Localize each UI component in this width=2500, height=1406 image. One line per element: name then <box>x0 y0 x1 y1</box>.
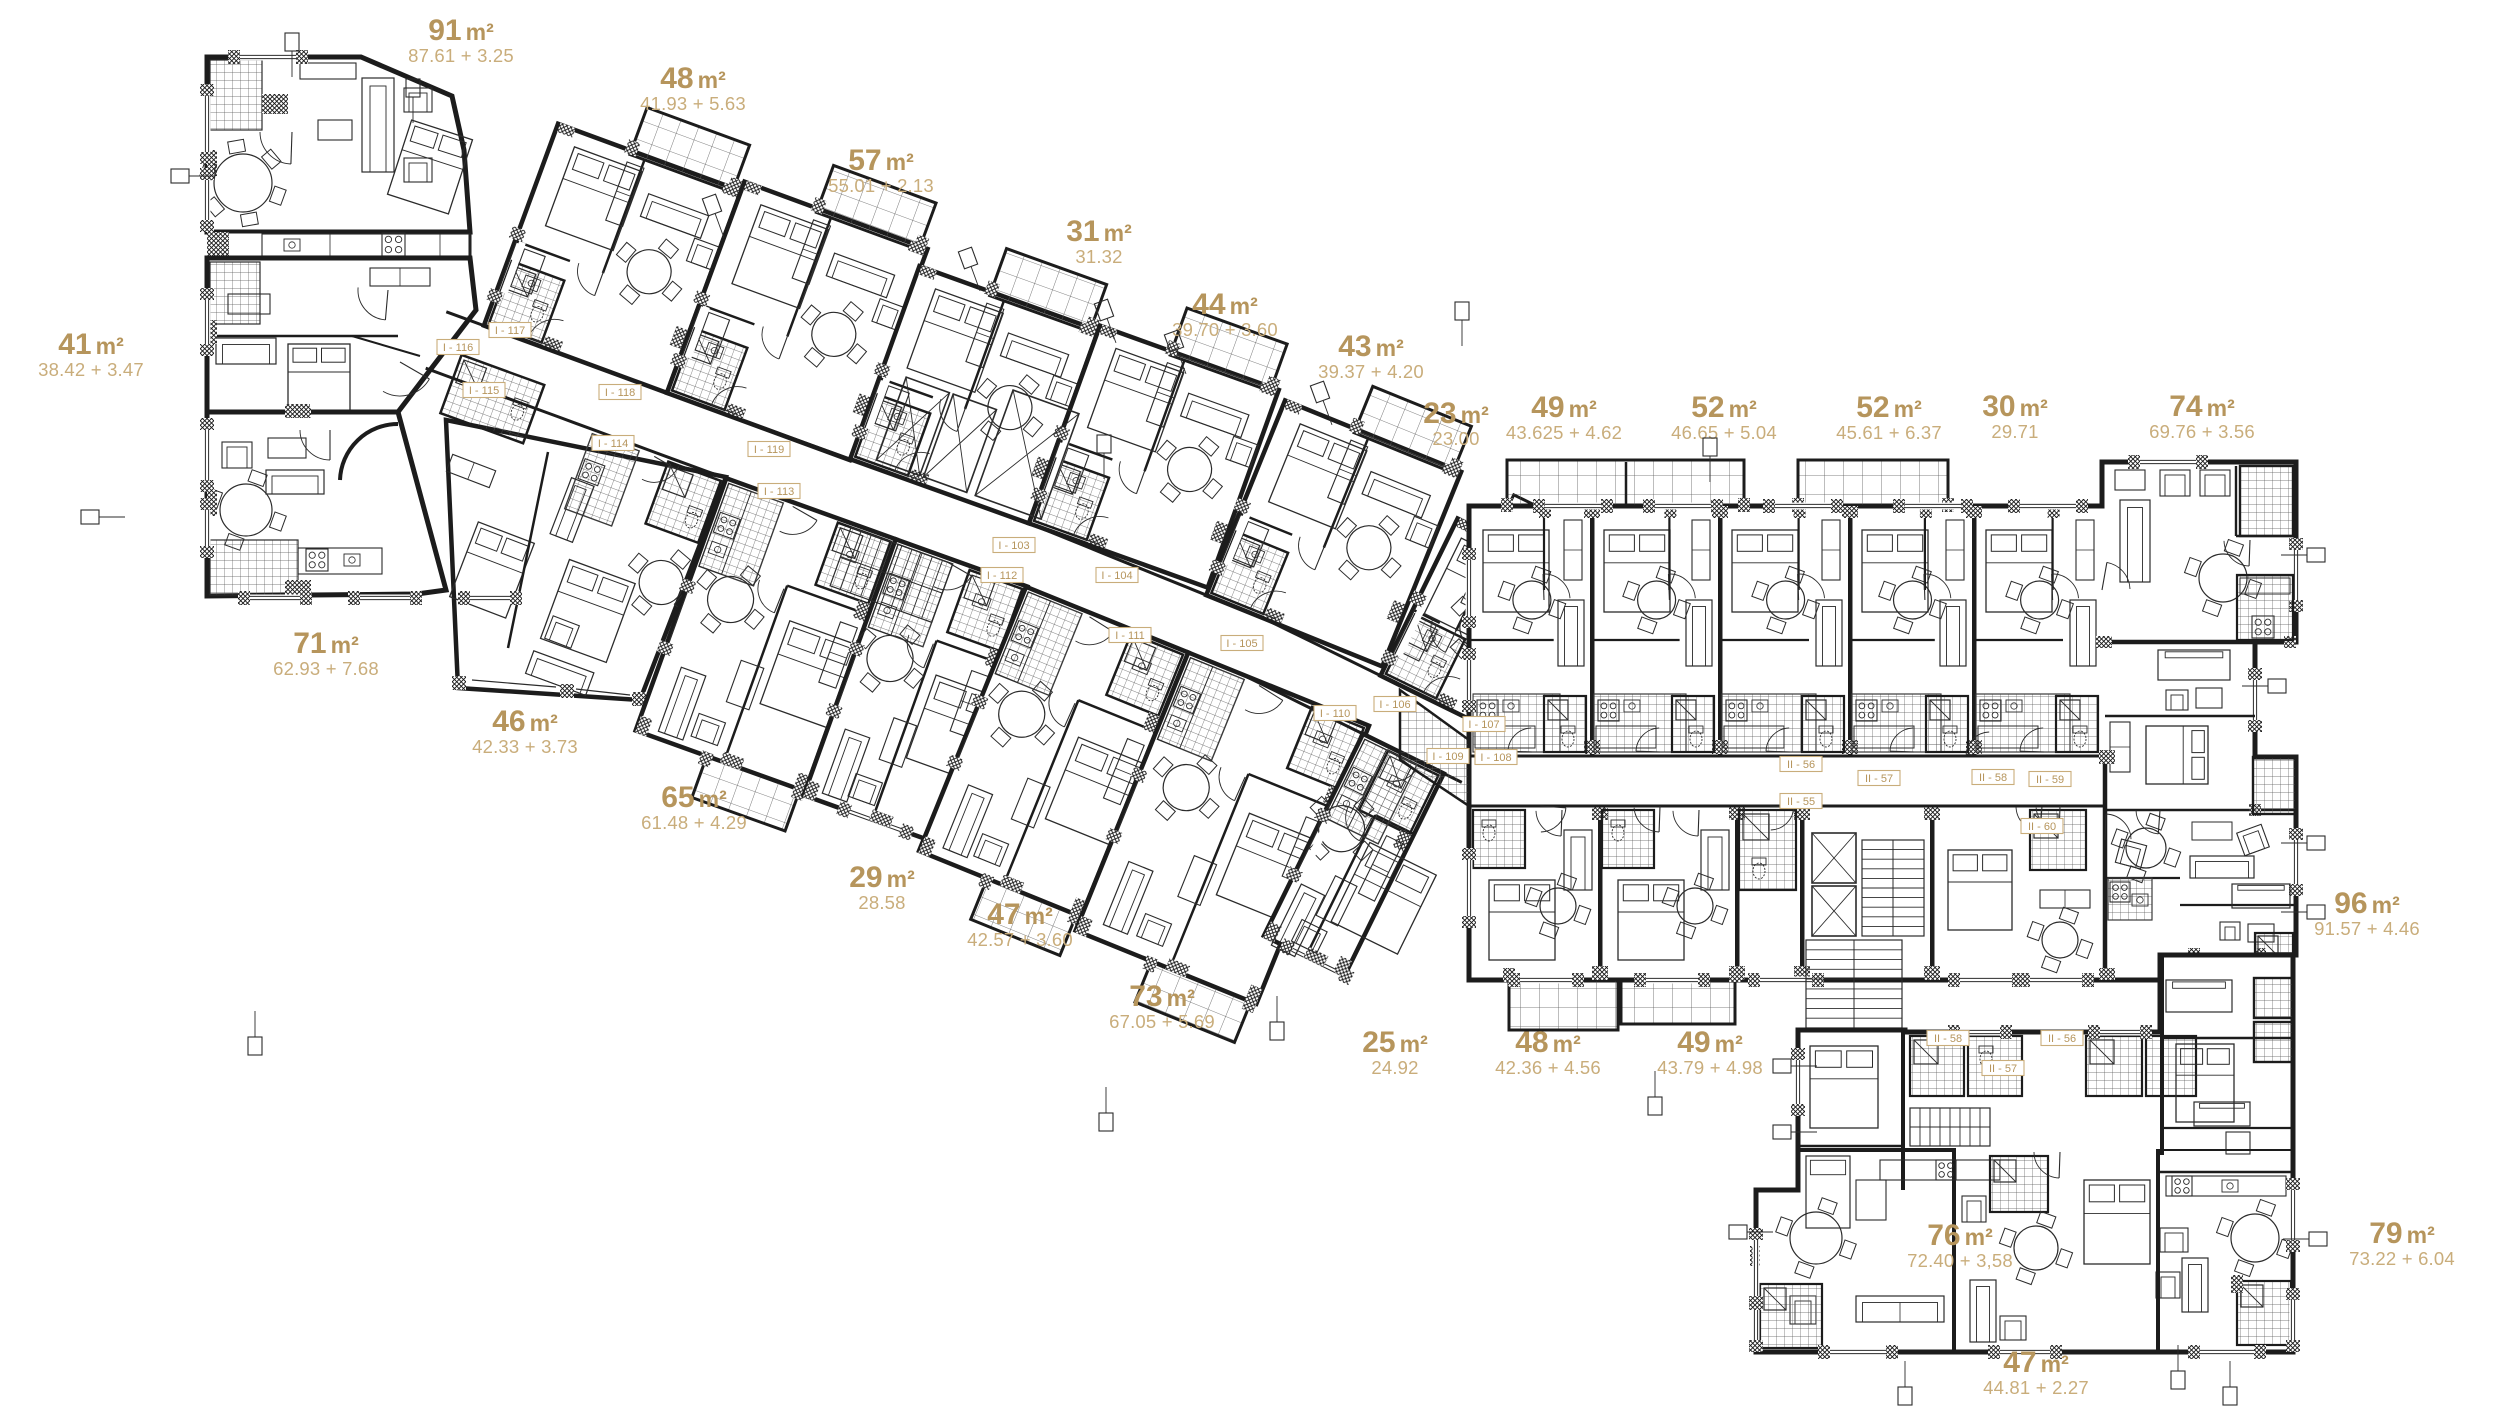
svg-text:I - 117: I - 117 <box>495 325 525 337</box>
svg-text:42.57 + 3.60: 42.57 + 3.60 <box>967 929 1073 950</box>
svg-text:74m²: 74m² <box>2169 390 2235 423</box>
svg-text:39.70 + 3.60: 39.70 + 3.60 <box>1172 319 1278 340</box>
svg-text:44m²: 44m² <box>1192 288 1258 321</box>
svg-text:38.42 + 3.47: 38.42 + 3.47 <box>38 359 144 380</box>
svg-text:I - 110: I - 110 <box>1320 708 1350 720</box>
svg-text:I - 115: I - 115 <box>469 385 499 397</box>
svg-text:I - 109: I - 109 <box>1432 751 1463 763</box>
svg-text:48m²: 48m² <box>1515 1026 1581 1059</box>
svg-text:46m²: 46m² <box>492 705 558 738</box>
svg-text:II - 55: II - 55 <box>1787 796 1815 808</box>
svg-text:43.79 + 4.98: 43.79 + 4.98 <box>1657 1057 1763 1078</box>
svg-text:57m²: 57m² <box>848 144 914 177</box>
svg-text:61.48 + 4.29: 61.48 + 4.29 <box>641 812 747 833</box>
svg-text:45.61 + 6.37: 45.61 + 6.37 <box>1836 422 1942 443</box>
svg-text:76m²: 76m² <box>1927 1219 1993 1252</box>
svg-text:67.05 + 5.69: 67.05 + 5.69 <box>1109 1011 1215 1032</box>
svg-text:I - 108: I - 108 <box>1480 752 1511 764</box>
svg-text:II - 60: II - 60 <box>2028 821 2056 833</box>
svg-text:I - 106: I - 106 <box>1379 699 1410 711</box>
svg-text:25m²: 25m² <box>1362 1026 1428 1059</box>
svg-text:I - 113: I - 113 <box>764 486 794 498</box>
svg-text:II - 56: II - 56 <box>1787 759 1815 771</box>
svg-text:31.32: 31.32 <box>1075 246 1122 267</box>
svg-text:62.93 + 7.68: 62.93 + 7.68 <box>273 658 379 679</box>
svg-text:47m²: 47m² <box>987 898 1053 931</box>
svg-text:43.625 + 4.62: 43.625 + 4.62 <box>1506 422 1622 443</box>
svg-text:I - 119: I - 119 <box>754 444 784 456</box>
svg-text:I - 116: I - 116 <box>443 342 473 354</box>
svg-text:65m²: 65m² <box>661 781 727 814</box>
svg-text:47m²: 47m² <box>2003 1346 2069 1379</box>
svg-text:71m²: 71m² <box>293 627 359 660</box>
svg-text:69.76 + 3.56: 69.76 + 3.56 <box>2149 421 2255 442</box>
svg-text:41.93 + 5.63: 41.93 + 5.63 <box>640 93 746 114</box>
svg-text:39.37 + 4.20: 39.37 + 4.20 <box>1318 361 1424 382</box>
svg-text:II - 58: II - 58 <box>1934 1033 1962 1045</box>
svg-text:55.01 + 2.13: 55.01 + 2.13 <box>828 175 934 196</box>
svg-text:48m²: 48m² <box>660 62 726 95</box>
svg-text:29m²: 29m² <box>849 861 915 894</box>
svg-text:II - 56: II - 56 <box>2048 1033 2076 1045</box>
svg-text:91.57 + 4.46: 91.57 + 4.46 <box>2314 918 2420 939</box>
svg-text:42.33 + 3.73: 42.33 + 3.73 <box>472 736 578 757</box>
svg-text:73m²: 73m² <box>1129 980 1195 1013</box>
svg-text:24.92: 24.92 <box>1371 1057 1418 1078</box>
svg-text:I - 114: I - 114 <box>598 438 628 450</box>
svg-text:73.22 + 6.04: 73.22 + 6.04 <box>2349 1248 2455 1269</box>
svg-text:28.58: 28.58 <box>858 892 905 913</box>
svg-text:46.65 + 5.04: 46.65 + 5.04 <box>1671 422 1777 443</box>
svg-text:96m²: 96m² <box>2334 887 2400 920</box>
svg-text:87.61 + 3.25: 87.61 + 3.25 <box>408 45 514 66</box>
svg-text:41m²: 41m² <box>58 328 124 361</box>
svg-text:II - 58: II - 58 <box>1979 772 2007 784</box>
svg-text:52m²: 52m² <box>1691 391 1757 424</box>
svg-text:I - 118: I - 118 <box>605 387 635 399</box>
svg-text:23.00: 23.00 <box>1432 428 1479 449</box>
svg-text:91m²: 91m² <box>428 14 494 47</box>
svg-text:II - 57: II - 57 <box>1865 773 1893 785</box>
svg-text:I - 103: I - 103 <box>998 540 1029 552</box>
svg-text:I - 105: I - 105 <box>1226 638 1257 650</box>
svg-text:I - 104: I - 104 <box>1101 570 1132 582</box>
svg-text:79m²: 79m² <box>2369 1217 2435 1250</box>
svg-text:31m²: 31m² <box>1066 215 1132 248</box>
svg-text:29.71: 29.71 <box>1991 421 2038 442</box>
svg-text:49m²: 49m² <box>1677 1026 1743 1059</box>
svg-text:42.36 + 4.56: 42.36 + 4.56 <box>1495 1057 1601 1078</box>
svg-text:72.40 + 3,58: 72.40 + 3,58 <box>1907 1250 2013 1271</box>
svg-text:49m²: 49m² <box>1531 391 1597 424</box>
svg-text:44.81 + 2.27: 44.81 + 2.27 <box>1983 1377 2089 1398</box>
svg-text:I - 107: I - 107 <box>1468 719 1499 731</box>
svg-text:52m²: 52m² <box>1856 391 1922 424</box>
svg-text:23m²: 23m² <box>1423 397 1489 430</box>
svg-text:30m²: 30m² <box>1982 390 2048 423</box>
svg-text:II - 59: II - 59 <box>2036 774 2064 786</box>
svg-text:II - 57: II - 57 <box>1989 1063 2017 1075</box>
svg-text:I - 112: I - 112 <box>987 570 1017 582</box>
svg-text:I - 111: I - 111 <box>1115 630 1145 642</box>
svg-text:43m²: 43m² <box>1338 330 1404 363</box>
